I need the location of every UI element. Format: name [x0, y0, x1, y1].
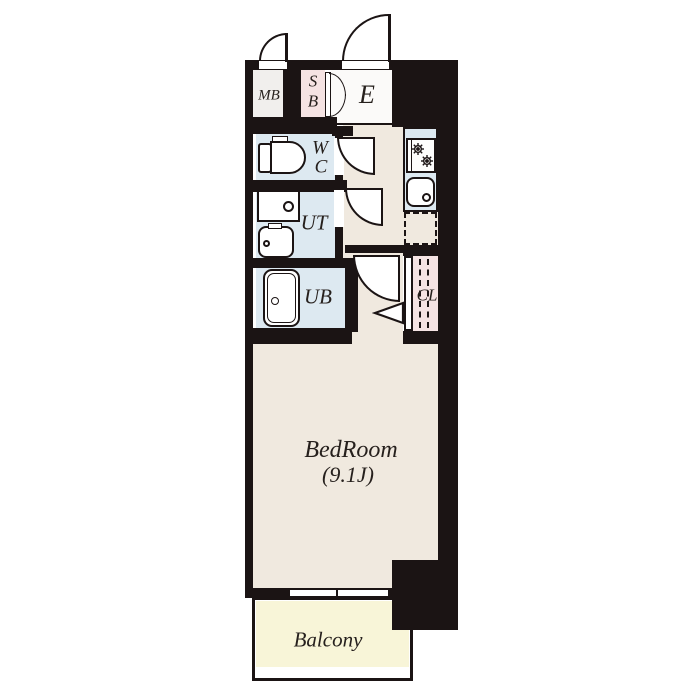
wall-bedroom-top-left	[245, 328, 352, 344]
room-sb-label-line1: S	[309, 73, 318, 90]
mb-door-swing-icon	[259, 33, 287, 61]
sliding-window-icon	[337, 589, 389, 597]
folding-door-icon	[372, 300, 405, 327]
sliding-window-icon	[289, 589, 337, 597]
wall-bedroom-door-lintel	[345, 245, 403, 253]
entrance-door-leaf	[388, 14, 391, 62]
wall-fridge-cl	[403, 245, 443, 256]
room-cl-label: CL	[417, 287, 438, 304]
mb-door-leaf	[285, 33, 288, 62]
toilet-flush-handle	[272, 136, 288, 142]
entrance-door-swing-icon	[342, 14, 389, 61]
cl-door-leaf	[404, 256, 413, 331]
floor-plan: MB S B E W C UT UB CL BedRoom (9.1J) Bal…	[0, 0, 700, 700]
wall-right	[438, 60, 458, 562]
room-wc-label-line1: W	[312, 139, 328, 158]
wall-below-top-row	[245, 117, 337, 134]
room-bedroom-size: (9.1J)	[322, 464, 374, 486]
wall-cl-bedroom	[403, 331, 443, 344]
kitchen-sink-drain	[422, 193, 431, 202]
wall-bottom-right-block	[392, 560, 458, 630]
room-ut-label: UT	[301, 213, 328, 234]
ut-door-gap	[334, 190, 344, 227]
washbasin-faucet	[268, 223, 282, 229]
room-mb-label: MB	[258, 89, 280, 104]
kitchen-sink-icon	[406, 177, 435, 207]
wall-ut-ub	[245, 258, 358, 268]
mb-door-gap	[258, 60, 288, 70]
toilet-bowl	[270, 141, 306, 174]
gas-stove-burners-icon	[406, 138, 436, 173]
room-ub-label: UB	[304, 287, 332, 308]
washing-machine-drain	[283, 201, 294, 212]
room-bedroom-label: BedRoom	[304, 438, 397, 462]
refrigerator-space-icon	[404, 212, 437, 245]
balcony-label: Balcony	[294, 630, 363, 651]
washbasin-drain	[263, 240, 270, 247]
room-entrance-label: E	[359, 82, 375, 108]
room-wc-label-line2: C	[315, 158, 328, 177]
entrance-step-line	[331, 123, 392, 125]
bathtub-drain	[271, 297, 279, 305]
wall-mb-sb	[283, 70, 301, 117]
entrance-door-gap	[341, 60, 390, 70]
room-sb-label-line2: B	[308, 93, 318, 110]
